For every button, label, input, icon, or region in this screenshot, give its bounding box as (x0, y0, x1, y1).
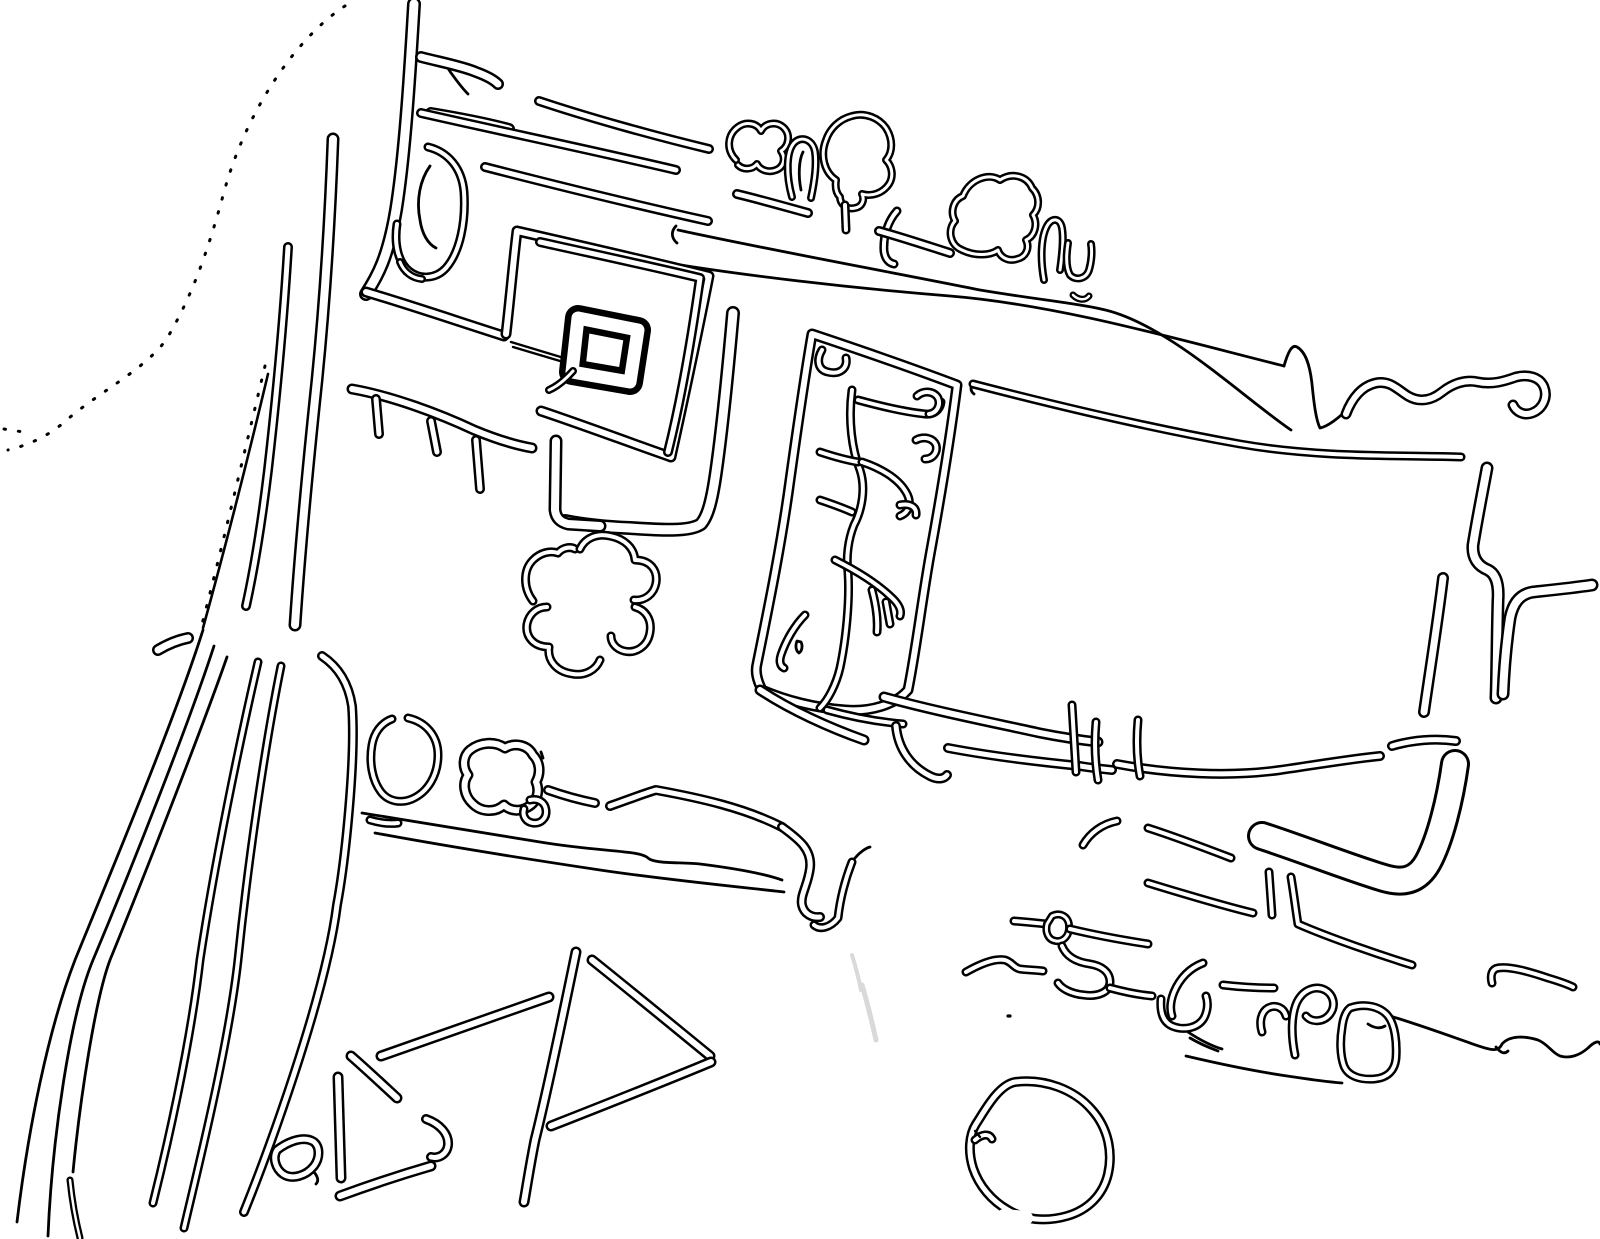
boot-core (1262, 764, 1455, 881)
strand-1 (17, 630, 203, 1222)
road-to-spiral-core (366, 292, 504, 336)
triangle-bottom-edge-core (551, 1062, 711, 1126)
capsule-short-core (351, 1056, 397, 1098)
slant-capsule-5-core (879, 231, 950, 253)
wavy-tail-step (1496, 1047, 1508, 1053)
highway-left-edge (203, 374, 268, 628)
slant-capsule-2-core (421, 113, 676, 170)
triangle-long-stroke-core (524, 952, 576, 1202)
triangle-top-edge-core (592, 960, 710, 1056)
dotted-arc-topleft (8, 6, 345, 450)
tiny-tick (541, 752, 543, 758)
ring-gap (1004, 1216, 1026, 1218)
slant-capsule-3-core (485, 167, 708, 221)
mainroad-left-cap (672, 226, 677, 243)
road-B-core (948, 748, 1112, 770)
highway-right-tube-core (295, 139, 333, 625)
gamma-flick (855, 847, 870, 858)
inner-L (555, 441, 600, 526)
curl-tree-inner (418, 166, 436, 248)
slant-capsule-4-core (737, 194, 808, 213)
capsule-1145-low-core (1148, 883, 1253, 913)
capsule-1145-core (1148, 828, 1231, 858)
mainroad-upper-line (678, 230, 1291, 430)
wavy-tail-line (1390, 1016, 1600, 1057)
faint-streak (862, 985, 876, 1040)
highway-left-edge-speckle (201, 366, 265, 628)
dotted-dash-leftedge (4, 429, 30, 433)
chain-arc-core (1171, 963, 1203, 1016)
mainroad-lower-line (662, 262, 1284, 366)
lobe-dimple (1368, 1024, 1385, 1028)
comb-stub-1-core (376, 399, 379, 434)
tree-right-blob (951, 176, 1039, 260)
edge-map-canvas (0, 0, 1600, 1239)
tree-arch-inner (799, 152, 803, 190)
right-E1-core (1503, 585, 1592, 694)
building-tiny-oval (796, 641, 802, 653)
median-tube (246, 247, 288, 606)
capsule-bottom-core (340, 1166, 431, 1196)
cloud-arc-topright (580, 535, 656, 600)
lower-road-upper-line (362, 813, 782, 880)
road-B-Jcurl-core (896, 726, 947, 779)
chain-bottom-line (1186, 1056, 1342, 1083)
long-capsule-C (973, 384, 1461, 457)
small-triangle-nub (314, 1172, 318, 1184)
tree-big-stem-core (845, 205, 846, 230)
cloud-arc-topleft (526, 548, 576, 601)
road-from-star-core (610, 790, 782, 827)
faint-streak-2 (852, 955, 861, 990)
capsule-long-up-core (381, 997, 549, 1056)
lower-road-lower-line (375, 833, 784, 892)
capsule-vertical-core (338, 1077, 341, 1178)
stroke-layer (4, 4, 1600, 1238)
edge-map-page (0, 0, 1600, 1239)
strand-2 (48, 646, 214, 1236)
right-R2-wedge-core (1424, 578, 1443, 712)
capsule-1080 (1083, 821, 1117, 845)
cloud-arc-topright-core (580, 535, 656, 600)
long-capsule-C-core (973, 384, 1461, 457)
road-A-core (884, 697, 1098, 742)
right-road-L-core (565, 313, 733, 530)
cloud-arc-bottomleft (527, 607, 600, 674)
